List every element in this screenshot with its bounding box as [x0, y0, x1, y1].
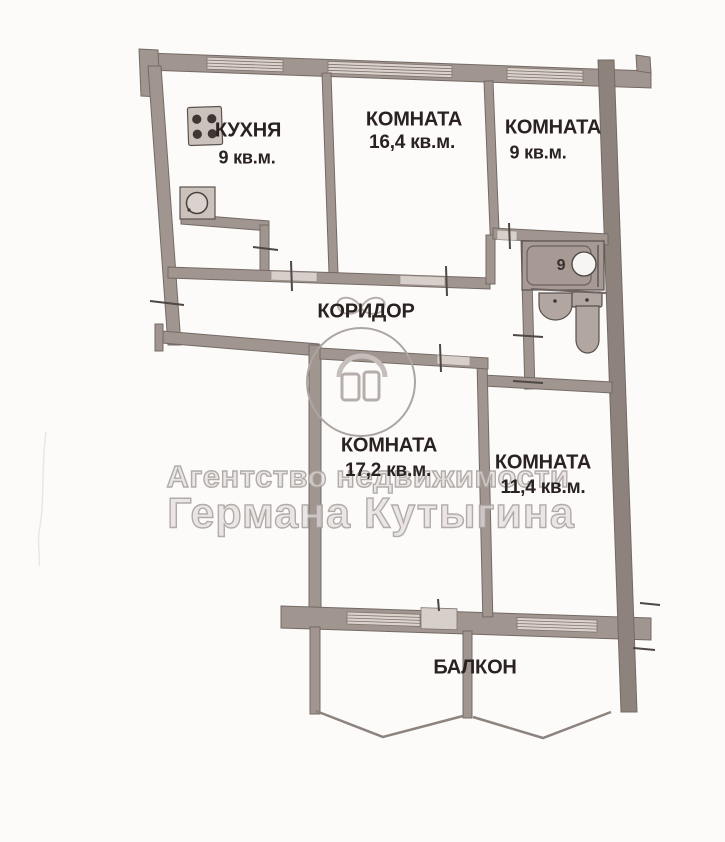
scan-crease — [38, 432, 46, 566]
room-label-room-9: КОМНАТА — [505, 117, 601, 140]
kitchen-sink-icon — [180, 187, 215, 219]
door-opening — [437, 355, 470, 366]
balcony-railing — [473, 712, 611, 738]
wall-room-divider-top — [484, 81, 499, 238]
door-opening — [400, 275, 445, 286]
room-label-room-16: КОМНАТА — [366, 109, 462, 132]
door-mark — [446, 266, 447, 296]
floor-plan-drawing — [0, 0, 725, 842]
bathroom-digit-label: 9 — [557, 257, 566, 275]
washbasin-icon — [539, 293, 572, 320]
door-opening — [271, 271, 317, 282]
balcony-left-edge — [310, 627, 320, 714]
door-mark — [291, 261, 292, 291]
area-label-kitchen: 9 кв.м. — [218, 148, 275, 169]
door-opening — [497, 230, 517, 240]
room-label-room-17: КОМНАТА — [341, 435, 437, 458]
balcony-railing — [316, 711, 463, 737]
wall-bath-bottom — [483, 375, 612, 393]
wall-kitchen-divider — [322, 73, 338, 278]
toilet-icon — [572, 292, 602, 353]
logo-window-icon — [342, 374, 359, 400]
room-label-room-11: КОМНАТА — [495, 452, 591, 475]
logo-window-icon — [364, 372, 379, 400]
balcony-structure — [310, 627, 611, 738]
wall-top-right-stub — [636, 55, 651, 73]
floor-plan-scan: Агентство недвижимости Германа Кутыгина … — [0, 0, 725, 842]
wall-step — [162, 331, 319, 356]
door-mark — [440, 344, 441, 372]
area-label-room-17: 17,2 кв.м. — [345, 460, 431, 482]
area-label-room-9: 9 кв.м. — [509, 143, 566, 164]
wall-divider-connector — [486, 235, 495, 284]
wall-end-mark — [633, 648, 655, 650]
balcony-door-mark — [438, 599, 439, 611]
door-mark — [509, 223, 510, 249]
wall-step-cap — [155, 324, 163, 351]
area-label-room-11: 11,4 кв.м. — [500, 477, 585, 499]
area-label-room-16: 16,4 кв.м. — [369, 132, 455, 154]
room-label-balcony: БАЛКОН — [433, 657, 516, 680]
wall-end-mark — [640, 603, 660, 605]
door-mark — [513, 335, 543, 337]
room-label-corridor: КОРИДОР — [317, 301, 414, 324]
room-label-kitchen: КУХНЯ — [215, 120, 281, 143]
